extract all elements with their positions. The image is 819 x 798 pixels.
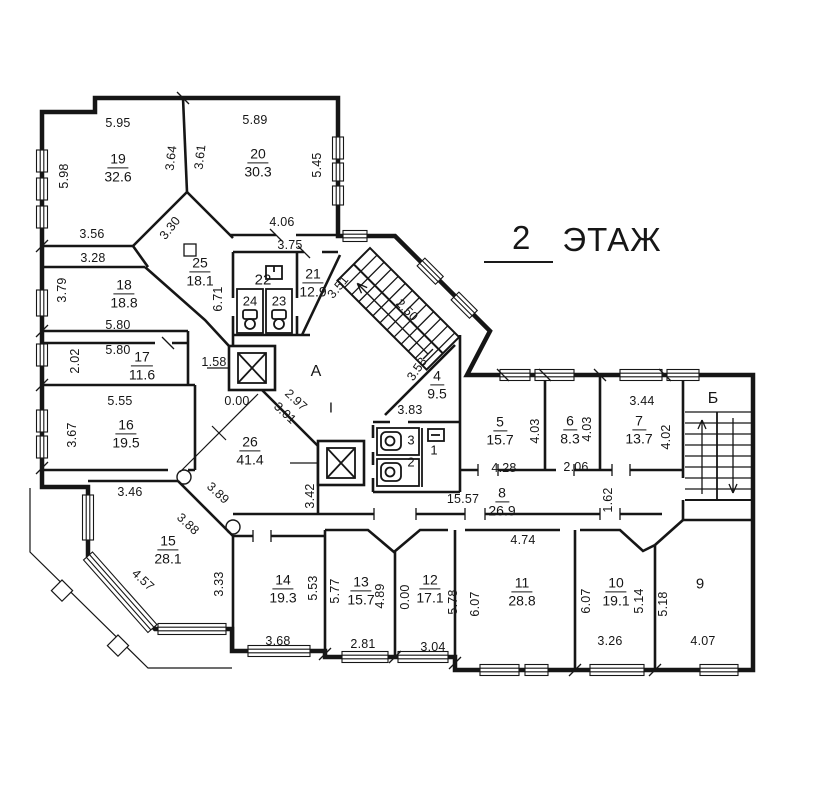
dimension-label: 4.74 [510, 533, 535, 547]
dimension-label: 6.07 [579, 588, 593, 613]
dimension-label: 3.64 [163, 145, 180, 172]
dimension-label: 3.67 [65, 422, 79, 447]
space-label-23: 23 [272, 294, 286, 309]
dimension-label: 4.07 [690, 634, 715, 648]
dimension-label: 3.46 [117, 485, 142, 499]
space-label-3: 3 [407, 433, 414, 448]
dimension-label: 0.00 [398, 584, 412, 609]
room-label-20: 2030.3 [244, 146, 271, 179]
dimension-label: 3.30 [157, 214, 184, 242]
space-label-1: 1 [430, 443, 437, 458]
dimension-label: 3.42 [303, 483, 317, 508]
dimension-label: 5.45 [310, 152, 324, 177]
dimension-label: 3.58 [404, 355, 430, 384]
space-label-9: 9 [696, 576, 704, 593]
dimension-label: 5.55 [107, 394, 132, 408]
room-label-14: 1419.3 [269, 572, 296, 605]
dimension-label: 3.04 [420, 640, 445, 654]
room-label-19: 1932.6 [104, 151, 131, 184]
dimension-label: 6.71 [211, 286, 225, 311]
room-label-5: 515.7 [486, 414, 513, 447]
dimension-label: 5.95 [105, 116, 130, 130]
dimension-label: 1.62 [601, 487, 615, 512]
dimension-label: 4.02 [659, 424, 673, 449]
dimension-label: 2.81 [350, 637, 375, 651]
dimension-label: 5.53 [306, 575, 320, 600]
dimension-label: 3.33 [212, 571, 226, 596]
room-label-6: 68.3 [560, 413, 579, 446]
space-label-2: 2 [407, 455, 414, 470]
dimension-label: 6.07 [468, 591, 482, 616]
dimension-label: 5.98 [57, 163, 71, 188]
floor-title: 2 ЭТАЖ [484, 219, 662, 263]
room-label-13: 1315.7 [347, 574, 374, 607]
dimension-label: 1.58 [201, 355, 226, 369]
room-label-12: 1217.1 [416, 572, 443, 605]
space-label-А: А [311, 363, 322, 381]
room-label-4: 49.5 [427, 368, 446, 401]
dimension-label: 5.78 [446, 589, 460, 614]
room-label-26: 2641.4 [236, 434, 263, 467]
room-label-17: 1711.6 [129, 349, 155, 382]
dimension-label: 3.51 [325, 273, 352, 301]
floor-word: ЭТАЖ [562, 221, 661, 263]
room-label-21: 2112.9 [299, 266, 326, 299]
dimension-label: 5.80 [105, 318, 130, 332]
dimension-label: 5.80 [105, 343, 130, 357]
room-label-10: 1019.1 [602, 575, 629, 608]
dimension-label: 4.28 [491, 461, 516, 475]
dimension-label: 0.00 [224, 394, 249, 408]
dimension-label: 4.03 [580, 416, 594, 441]
space-label-24: 24 [243, 294, 257, 309]
room-label-8: 826.9 [488, 485, 515, 518]
dimension-label: 3.61 [192, 144, 209, 171]
room-label-16: 1619.5 [112, 417, 139, 450]
dimension-label: 4.03 [528, 418, 542, 443]
dimension-label: 5.89 [242, 113, 267, 127]
floor-number: 2 [484, 219, 553, 263]
dimension-label: 3.89 [204, 479, 232, 506]
dimension-label: 5.77 [328, 578, 342, 603]
dimension-label: 3.68 [265, 634, 290, 648]
floor-plan-page: 1932.62030.31818.82518.12112.91711.61619… [0, 0, 819, 798]
dimension-label: 3.79 [55, 277, 69, 302]
labels-layer: 1932.62030.31818.82518.12112.91711.61619… [0, 0, 819, 798]
dimension-label: 3.83 [397, 403, 422, 417]
dimension-label: 2.06 [563, 460, 588, 474]
dimension-label: 3.28 [80, 251, 105, 265]
room-label-7: 713.7 [625, 413, 652, 446]
space-label-22: 22 [255, 272, 272, 289]
room-label-18: 1818.8 [110, 277, 137, 310]
space-label-I: I [329, 400, 333, 417]
dimension-label: 4.06 [269, 215, 294, 229]
room-label-11: 1128.8 [508, 575, 535, 608]
dimension-label: 15.57 [447, 492, 479, 506]
dimension-label: 5.18 [656, 591, 670, 616]
dimension-label: 4.57 [129, 566, 157, 593]
dimension-label: 3.75 [277, 238, 302, 252]
dimension-label: 3.44 [629, 394, 654, 408]
dimension-label: 2.50 [393, 296, 421, 324]
dimension-label: 5.14 [632, 588, 646, 613]
dimension-label: 2.02 [68, 348, 82, 373]
room-label-25: 2518.1 [186, 255, 213, 288]
dimension-label: 4.89 [373, 583, 387, 608]
space-label-Б: Б [708, 390, 719, 408]
room-label-15: 1528.1 [154, 533, 181, 566]
dimension-label: 3.56 [79, 227, 104, 241]
dimension-label: 3.26 [597, 634, 622, 648]
